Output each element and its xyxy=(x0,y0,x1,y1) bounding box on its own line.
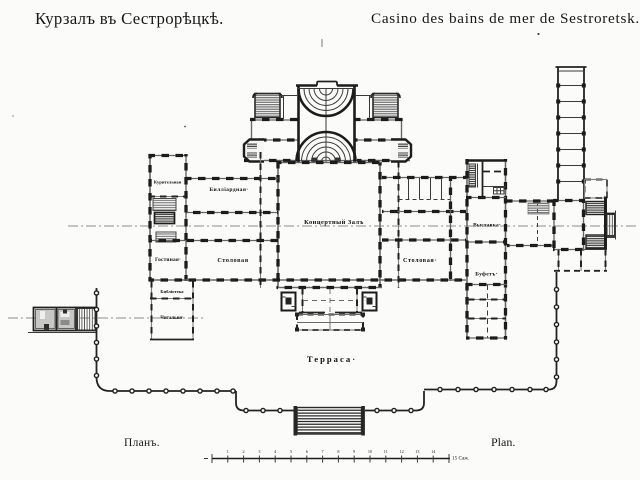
svg-text:8: 8 xyxy=(337,449,339,454)
svg-text:11: 11 xyxy=(384,449,388,454)
svg-text:12: 12 xyxy=(400,449,404,454)
svg-text:Буфетъ·: Буфетъ· xyxy=(475,271,498,278)
svg-text:1: 1 xyxy=(227,449,229,454)
svg-text:Выставка·: Выставка· xyxy=(473,223,501,229)
svg-text:Планъ.: Планъ. xyxy=(124,437,160,449)
svg-text:15 Саж.: 15 Саж. xyxy=(452,456,469,462)
svg-text:3: 3 xyxy=(258,449,260,454)
svg-text:7: 7 xyxy=(322,449,324,454)
svg-text:9: 9 xyxy=(353,449,355,454)
svg-text:Курзалъ въ Сестрорѣцкѣ.: Курзалъ въ Сестрорѣцкѣ. xyxy=(35,9,224,28)
svg-text:Терраса·: Терраса· xyxy=(307,354,357,364)
svg-text:5: 5 xyxy=(290,449,292,454)
svg-text:Библіотека: Библіотека xyxy=(160,289,184,294)
svg-text:Plan.: Plan. xyxy=(491,435,515,449)
svg-text:Столовая: Столовая xyxy=(217,257,248,264)
svg-text:Гостиная·: Гостиная· xyxy=(155,257,181,263)
svg-text:Курительная: Курительная xyxy=(154,180,182,185)
svg-text:Casino des bains de mer de Ses: Casino des bains de mer de Sestroretsk. xyxy=(371,10,640,27)
svg-text:6: 6 xyxy=(306,449,308,454)
svg-text:Столовая·: Столовая· xyxy=(403,257,437,264)
svg-text:10: 10 xyxy=(368,449,372,454)
svg-text:2: 2 xyxy=(243,449,245,454)
svg-text:Читальня·: Читальня· xyxy=(160,316,184,321)
svg-text:Билліардная·: Билліардная· xyxy=(209,187,248,193)
svg-text:Концертный Залъ: Концертный Залъ xyxy=(304,219,364,226)
svg-text:13: 13 xyxy=(415,449,419,454)
